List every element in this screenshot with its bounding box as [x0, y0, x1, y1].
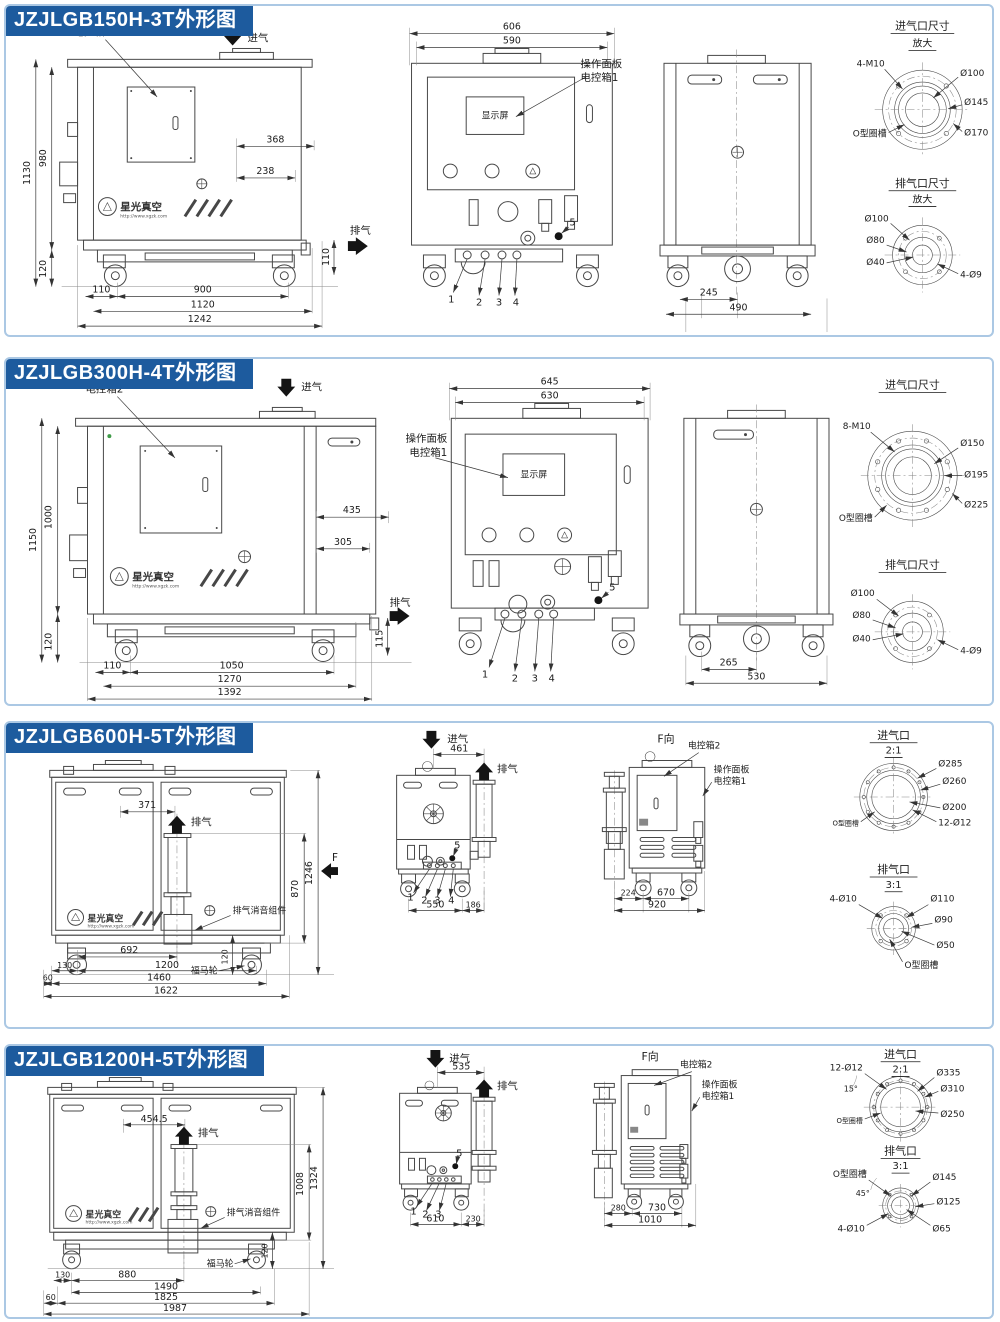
oring-label: O型圈槽: [905, 959, 939, 971]
dim-total-width: 1392: [218, 687, 242, 698]
dim-top-width: 435: [343, 505, 361, 516]
inlet-bolts: 12-Ø12: [830, 1063, 863, 1074]
callout-3: 3: [434, 896, 440, 907]
dim-off2: 60: [43, 974, 53, 983]
callout-3: 3: [496, 297, 502, 308]
outlet-d2: Ø80: [852, 610, 871, 621]
left-view-leaders: [105, 40, 157, 97]
drawing-300h: 1150 1000 120 435 305 115 110 1050 1270 …: [6, 359, 992, 704]
inlet-detail-leaders: [871, 432, 962, 517]
front-view-dim-lines: [411, 1073, 485, 1225]
ebox2-label: 电控箱2: [688, 740, 721, 752]
callout-4: 4: [448, 896, 454, 907]
dim-side-w2: 490: [730, 302, 748, 313]
outlet-d2: Ø80: [866, 235, 885, 246]
dim-span: 900: [194, 285, 212, 296]
dim-span: 1050: [220, 660, 244, 671]
inlet-bolts: 12-Ø12: [938, 818, 971, 829]
outlet-arrow-icon: [348, 237, 368, 255]
op-panel-label: 操作面板: [714, 763, 750, 775]
dim-side-w1: 245: [700, 288, 718, 299]
inlet-d2: Ø145: [964, 97, 988, 108]
front-view-structure: [397, 761, 496, 913]
dim-base-height: 120: [38, 260, 49, 278]
ebox1-label: 电控箱1: [702, 1090, 734, 1102]
muffler-label: 排气消音组件: [233, 905, 287, 917]
f-label: F: [332, 852, 338, 864]
inlet-angle: 15°: [844, 1084, 858, 1093]
drawing-150h: 1130 980 120 368 238 110 110 900 1120 12…: [6, 6, 992, 335]
inlet-port-detail: [875, 62, 970, 157]
f-view-structure: [592, 1070, 690, 1222]
brand-url: http://www.xgzk.com: [120, 213, 167, 219]
panel-title-1200h: JZJLGB1200H-5T外形图: [6, 1046, 264, 1076]
outlet-detail-title: 排气口: [877, 862, 910, 876]
dim-fview-w2: 670: [657, 888, 675, 899]
dim-right-height: 115: [375, 630, 386, 648]
dim-right-height: 110: [321, 248, 332, 266]
dim-base-height: 120: [221, 949, 230, 964]
inlet-d3: Ø200: [942, 802, 966, 813]
inlet-d3: Ø170: [964, 127, 988, 138]
dim-offset: 371: [138, 800, 156, 811]
inlet-arrow-icon: [426, 1050, 444, 1068]
callout-2: 2: [476, 297, 482, 308]
callout-1: 1: [448, 294, 454, 305]
outlet-d1: Ø100: [851, 588, 875, 599]
outlet-detail-sub: 3:1: [886, 880, 902, 891]
brand-url: http://www.xgzk.com: [132, 583, 179, 589]
op-panel-label: 操作面板: [581, 57, 623, 70]
left-view-structure: [50, 761, 287, 975]
ebox1-label: 电控箱1: [409, 446, 447, 459]
outlet-arrow-icon: [475, 762, 493, 780]
inlet-detail-title: 进气口尺寸: [895, 19, 950, 33]
side-view-structure: [660, 49, 815, 294]
inlet-arrow-icon: [277, 379, 295, 397]
ebox1-label: 电控箱1: [581, 71, 619, 84]
outlet-d1: Ø110: [930, 894, 954, 905]
callout-1: 1: [410, 1207, 416, 1218]
front-view-leaders: [435, 458, 608, 672]
outlet-arrow-icon: [168, 816, 186, 834]
outlet-arrow-icon: [175, 1127, 193, 1145]
left-view-dim-lines: [42, 418, 389, 699]
dim-top-width2: 238: [256, 166, 274, 177]
left-view-structure: [70, 407, 379, 661]
ebox1-label: 电控箱1: [714, 775, 747, 787]
callout-2: 2: [421, 896, 427, 907]
outlet-arrow-icon: [390, 607, 410, 625]
outlet-angle: 45°: [856, 1189, 870, 1198]
f-view-label: F向: [657, 732, 674, 746]
front-view-structure: [451, 403, 648, 654]
callout-2: 2: [512, 673, 518, 684]
dim-front-w1: 645: [541, 377, 559, 388]
callout-5: 5: [454, 840, 460, 851]
panel-jzjlgb300h: 1150 1000 120 435 305 115 110 1050 1270 …: [4, 357, 994, 706]
callout-1: 1: [407, 893, 413, 904]
dim-mid-width: 1460: [147, 973, 171, 984]
caster-label: 福马轮: [207, 1258, 234, 1270]
caster-label: 福马轮: [191, 965, 218, 977]
dim-off2: 60: [46, 1293, 56, 1302]
dim-muffler-height: 870: [290, 880, 301, 898]
left-view-dim-lines: [44, 1087, 323, 1314]
inlet-d2: Ø310: [940, 1083, 964, 1094]
brand-name: 星光真空: [132, 570, 174, 583]
panel-title-300h: JZJLGB300H-4T外形图: [6, 359, 253, 389]
dim-off: 130: [57, 961, 72, 970]
dim-span1: 692: [120, 945, 138, 956]
front-view-extension-lines: [411, 1067, 485, 1227]
front-view-dim-lines: [409, 755, 485, 911]
dim-muffler-height: 1008: [295, 1172, 306, 1196]
outlet-port-detail: [875, 594, 951, 669]
panel-jzjlgb1200h: 进气 排气 454.5 1008 1324 120 排气消音组件 福马轮 130…: [4, 1044, 994, 1319]
dim-front-w1: 606: [503, 22, 521, 33]
display-label: 显示屏: [520, 470, 547, 481]
inlet-d1: Ø285: [938, 758, 962, 769]
outlet-label: 排气: [350, 224, 371, 237]
outlet-label: 排气: [497, 1079, 518, 1092]
drawing-600h: 进气 排气 371 870 1246 120 排气消音组件 福马轮 F 692 …: [6, 723, 992, 1027]
dim-front-w2: 186: [466, 901, 481, 910]
dim-total-width: 1622: [154, 985, 178, 996]
drawing-1200h: 进气 排气 454.5 1008 1324 120 排气消音组件 福马轮 130…: [6, 1046, 992, 1317]
outlet-label: 排气: [191, 816, 212, 829]
dim-fview-w3: 920: [648, 900, 666, 911]
inlet-d1: Ø100: [960, 68, 984, 79]
inlet-detail-sub: 2:1: [893, 1065, 909, 1076]
outlet-d1: Ø145: [932, 1172, 956, 1183]
outlet-detail-leaders: [873, 599, 958, 649]
inlet-bolts: 4-M10: [857, 59, 885, 69]
outlet-detail-title: 排气口: [884, 1143, 917, 1157]
left-view-dim-lines: [44, 770, 318, 996]
outlet-d3: Ø65: [932, 1223, 950, 1234]
dim-fview-w1: 224: [621, 889, 636, 898]
dim-mid-width: 1270: [218, 674, 242, 685]
callout-3: 3: [532, 673, 538, 684]
inlet-port-detail: [849, 1071, 937, 1144]
outlet-label: 排气: [198, 1127, 219, 1140]
front-view-leaders: [453, 77, 585, 295]
dim-base-height: 120: [260, 1243, 269, 1258]
display-label: 显示屏: [482, 111, 509, 122]
dim-front-w2: 230: [466, 1214, 481, 1223]
panel-title-600h: JZJLGB600H-5T外形图: [6, 723, 253, 753]
dim-fview-w2: 730: [648, 1203, 666, 1214]
panel-jzjlgb600h: 进气 排气 371 870 1246 120 排气消音组件 福马轮 F 692 …: [4, 721, 994, 1029]
op-panel-label: 操作面板: [702, 1078, 738, 1090]
outlet-port-detail: [871, 1178, 923, 1227]
outlet-port-detail: [867, 902, 921, 955]
inlet-arrow-icon: [422, 731, 440, 749]
outlet-bolts: 4-Ø10: [837, 1223, 865, 1234]
dim-base-height: 120: [44, 633, 55, 651]
outlet-d2: Ø90: [934, 914, 953, 925]
oring-label: O型圈槽: [853, 127, 887, 139]
brand-name: 星光真空: [88, 912, 124, 924]
dim-total-width: 1987: [163, 1303, 187, 1314]
dim-offset: 454.5: [141, 1114, 168, 1125]
front-view-extension-lines: [409, 749, 485, 913]
brand-url: http://www.xgzk.com: [88, 923, 135, 929]
front-view-structure: [412, 48, 613, 286]
outlet-detail-sub: 放大: [913, 193, 933, 206]
outlet-arrow-icon: [475, 1080, 493, 1098]
callout-1: 1: [482, 669, 488, 680]
dim-total-height: 1150: [28, 528, 39, 552]
outlet-d3: Ø40: [852, 634, 871, 645]
outlet-port-detail: [885, 217, 961, 292]
f-view-structure: [602, 752, 704, 913]
inlet-detail-sub: 2:1: [886, 746, 902, 757]
outlet-d3: Ø50: [936, 940, 955, 951]
brand-name: 星光真空: [120, 201, 162, 214]
dim-body-height: 1000: [44, 505, 55, 529]
dim-offset: 110: [92, 285, 110, 296]
inlet-d2: Ø195: [964, 470, 988, 481]
dim-side-w2: 530: [747, 671, 765, 682]
callout-4: 4: [513, 297, 519, 308]
front-view-leaders: [417, 1159, 458, 1210]
inlet-d3: Ø225: [964, 499, 988, 510]
dim-total-width: 1242: [188, 314, 212, 325]
f-direction-arrow-icon: [321, 863, 338, 879]
outlet-detail-title: 排气口尺寸: [885, 558, 940, 572]
inlet-detail-title: 进气口: [877, 728, 910, 742]
outlet-bolts: 4-Ø9: [960, 270, 982, 281]
dim-front-top: 535: [452, 1062, 470, 1073]
outlet-detail-sub: 3:1: [893, 1161, 909, 1172]
dim-total-height: 1130: [22, 161, 33, 185]
dim-span1: 880: [118, 1270, 136, 1281]
dim-top-width: 368: [266, 134, 284, 145]
oring-label: O型圈槽: [839, 512, 873, 524]
outlet-label: 排气: [497, 762, 518, 775]
oring-label: O型圈槽: [837, 1116, 863, 1125]
inlet-label: 进气: [301, 381, 322, 394]
inlet-port-detail: [854, 758, 934, 837]
dim-total-height: 1324: [309, 1166, 320, 1190]
f-view-leaders: [654, 1072, 700, 1111]
callout-5: 5: [609, 582, 615, 593]
f-view-label: F向: [641, 1049, 658, 1063]
dim-front-top: 461: [450, 744, 468, 755]
inlet-d2: Ø260: [942, 776, 966, 787]
outlet-d1: Ø100: [865, 213, 889, 224]
inlet-d1: Ø150: [960, 438, 984, 449]
left-view-dim-lines: [36, 59, 334, 326]
callout-4: 4: [549, 673, 555, 684]
op-panel-label: 操作面板: [406, 432, 448, 445]
outlet-detail-title: 排气口尺寸: [895, 176, 950, 190]
dim-top-width2: 305: [334, 537, 352, 548]
inlet-detail-leaders: [865, 1074, 939, 1119]
left-view-structure: [48, 1078, 296, 1269]
dim-span2: 1490: [154, 1281, 178, 1292]
callout-3: 3: [435, 1210, 441, 1221]
panel-jzjlgb150h: 1130 980 120 368 238 110 110 900 1120 12…: [4, 4, 994, 337]
outlet-bolts: 4-Ø9: [960, 646, 982, 657]
dim-offset: 110: [103, 660, 121, 671]
dim-span2: 1200: [155, 960, 179, 971]
oring-label: O型圈槽: [833, 819, 859, 828]
brand-url: http://www.xgzk.com: [86, 1219, 133, 1225]
inlet-bolts: 8-M10: [843, 422, 871, 432]
outlet-bolts: 4-Ø10: [829, 894, 857, 905]
dim-fview-w3: 1010: [638, 1214, 662, 1225]
dim-mid-width: 1825: [154, 1292, 178, 1303]
dim-total-height: 1246: [304, 861, 315, 885]
inlet-d3: Ø250: [940, 1109, 964, 1120]
inlet-detail-title: 进气口尺寸: [885, 378, 940, 392]
muffler-label: 排气消音组件: [227, 1207, 281, 1219]
brand-name: 星光真空: [86, 1209, 122, 1221]
dim-fview-w1: 280: [611, 1204, 626, 1213]
inlet-detail-sub: 放大: [913, 37, 933, 50]
outlet-d3: Ø40: [866, 257, 885, 268]
dim-body-height: 980: [38, 149, 49, 167]
side-view-structure: [680, 404, 833, 660]
dim-front-w2: 590: [503, 36, 521, 47]
ebox2-label: 电控箱2: [680, 1059, 712, 1071]
dim-side-w1: 265: [720, 657, 738, 668]
callout-2: 2: [422, 1210, 428, 1221]
left-view-leaders: [117, 397, 175, 458]
dim-mid-width: 1120: [191, 299, 215, 310]
drawing-sheet: 1130 980 120 368 238 110 110 900 1120 12…: [0, 0, 1000, 1322]
dim-off: 130: [55, 1271, 70, 1280]
dim-front-w2: 630: [541, 391, 559, 402]
oring-label: O型圈槽: [833, 1168, 867, 1180]
front-view-structure: [400, 1078, 496, 1227]
outlet-detail-leaders: [859, 905, 935, 962]
callout-5: 5: [456, 1148, 462, 1159]
outlet-label: 排气: [390, 596, 411, 609]
inlet-detail-title: 进气口: [884, 1047, 917, 1061]
outlet-d2: Ø125: [936, 1197, 960, 1208]
inlet-d1: Ø335: [936, 1068, 960, 1079]
callout-5: 5: [569, 217, 575, 228]
panel-title-150h: JZJLGB150H-3T外形图: [6, 6, 253, 36]
